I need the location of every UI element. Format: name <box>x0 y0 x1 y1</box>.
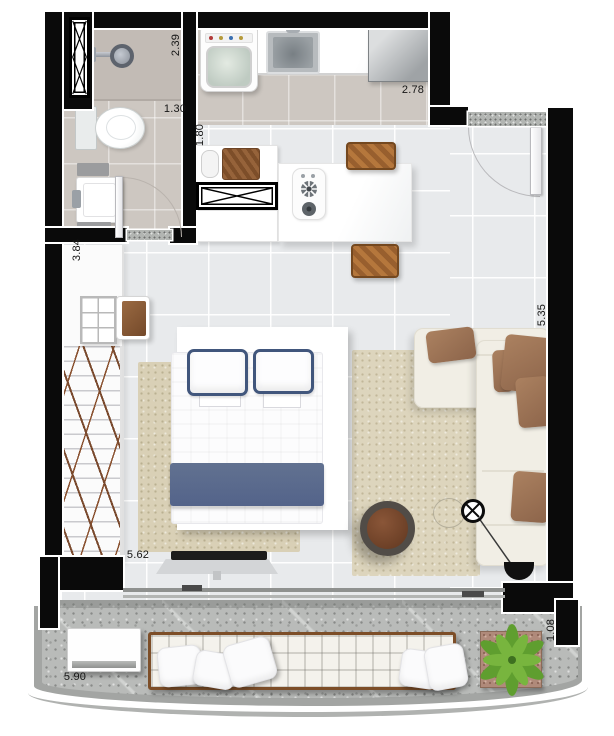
entry-door-leaf <box>530 127 542 195</box>
bathroom-door-leaf <box>115 176 123 238</box>
bench-pillow-5 <box>422 642 469 692</box>
wall-bottom-left-leg <box>40 557 58 628</box>
washer-knob-yellow2 <box>239 36 243 40</box>
wall-kitchen-step-foot <box>430 107 468 125</box>
dim-balcony-depth: 1.08 <box>545 613 557 647</box>
ottoman <box>360 501 415 556</box>
dim-kitchen-corridor: 1.80 <box>194 118 206 152</box>
sliding-door-track-2 <box>123 595 505 598</box>
balcony-side-table <box>67 628 141 672</box>
cutting-board <box>222 148 260 180</box>
vanity-basin <box>83 183 116 217</box>
tv-stand-stub <box>213 571 221 580</box>
closet-hangers <box>64 346 122 565</box>
floor-plan: 2.39 1.30 1.80 2.78 3.84 5.35 5.62 5.90 … <box>0 0 614 736</box>
wall-left <box>45 12 62 563</box>
fridge <box>368 28 430 82</box>
entry-threshold <box>468 112 546 126</box>
pillow-right <box>253 349 314 394</box>
wall-right <box>548 108 573 612</box>
bed-runner-blue <box>170 463 324 506</box>
bar-stool-top <box>346 142 396 170</box>
bathroom-threshold <box>127 230 172 240</box>
washer-knob-blue <box>229 36 233 40</box>
plant-leaves <box>472 622 552 698</box>
desk-chair <box>116 296 150 340</box>
kitchen-lower-cabinet-2 <box>196 210 278 242</box>
wall-top <box>45 12 450 28</box>
wall-balcony-right <box>556 600 578 645</box>
washer-lid-glass <box>206 46 252 88</box>
dim-kitchen-width: 2.78 <box>396 84 430 96</box>
washing-machine <box>200 28 258 92</box>
pillow-left <box>187 349 248 396</box>
toilet-bowl-inner <box>106 115 136 140</box>
bath-mat-top <box>77 163 109 176</box>
washer-knob-yellow <box>219 36 223 40</box>
cooktop <box>292 168 326 220</box>
sofa-cushion-1 <box>425 326 477 364</box>
wall-kitchen-step <box>430 12 450 107</box>
bar-stool-bottom <box>351 244 399 278</box>
hatched-wall-kitchen <box>196 182 278 210</box>
toilet-tank <box>75 106 97 150</box>
desk-chair-seat <box>122 301 146 336</box>
dim-living-length: 5.62 <box>121 549 155 561</box>
floor-outlet-symbol <box>461 499 485 523</box>
kitchen-sink-basin <box>273 37 313 68</box>
tv-screen <box>171 551 267 560</box>
cooktop-burners <box>293 169 327 221</box>
duct-shaft <box>69 17 90 98</box>
prep-sink <box>201 150 219 178</box>
washer-knob-red <box>209 36 213 40</box>
dresser-grid-unit <box>80 296 117 344</box>
sliding-door-handle-2 <box>462 591 484 597</box>
dim-bathroom-width: 1.30 <box>158 103 192 115</box>
sliding-door-handle <box>182 585 202 591</box>
dim-closet-wall: 3.84 <box>71 233 83 267</box>
vanity-faucet <box>72 190 81 208</box>
shower-head <box>110 44 134 68</box>
dim-balcony-length: 5.90 <box>58 671 92 683</box>
sliding-door-track <box>123 588 505 592</box>
balcony-side-table-stripe <box>72 661 136 668</box>
pillow-tab-right <box>263 392 301 408</box>
kitchen-sink <box>266 31 320 74</box>
dim-bathroom-length: 2.39 <box>170 28 182 62</box>
dim-living-wall: 5.35 <box>536 298 548 332</box>
